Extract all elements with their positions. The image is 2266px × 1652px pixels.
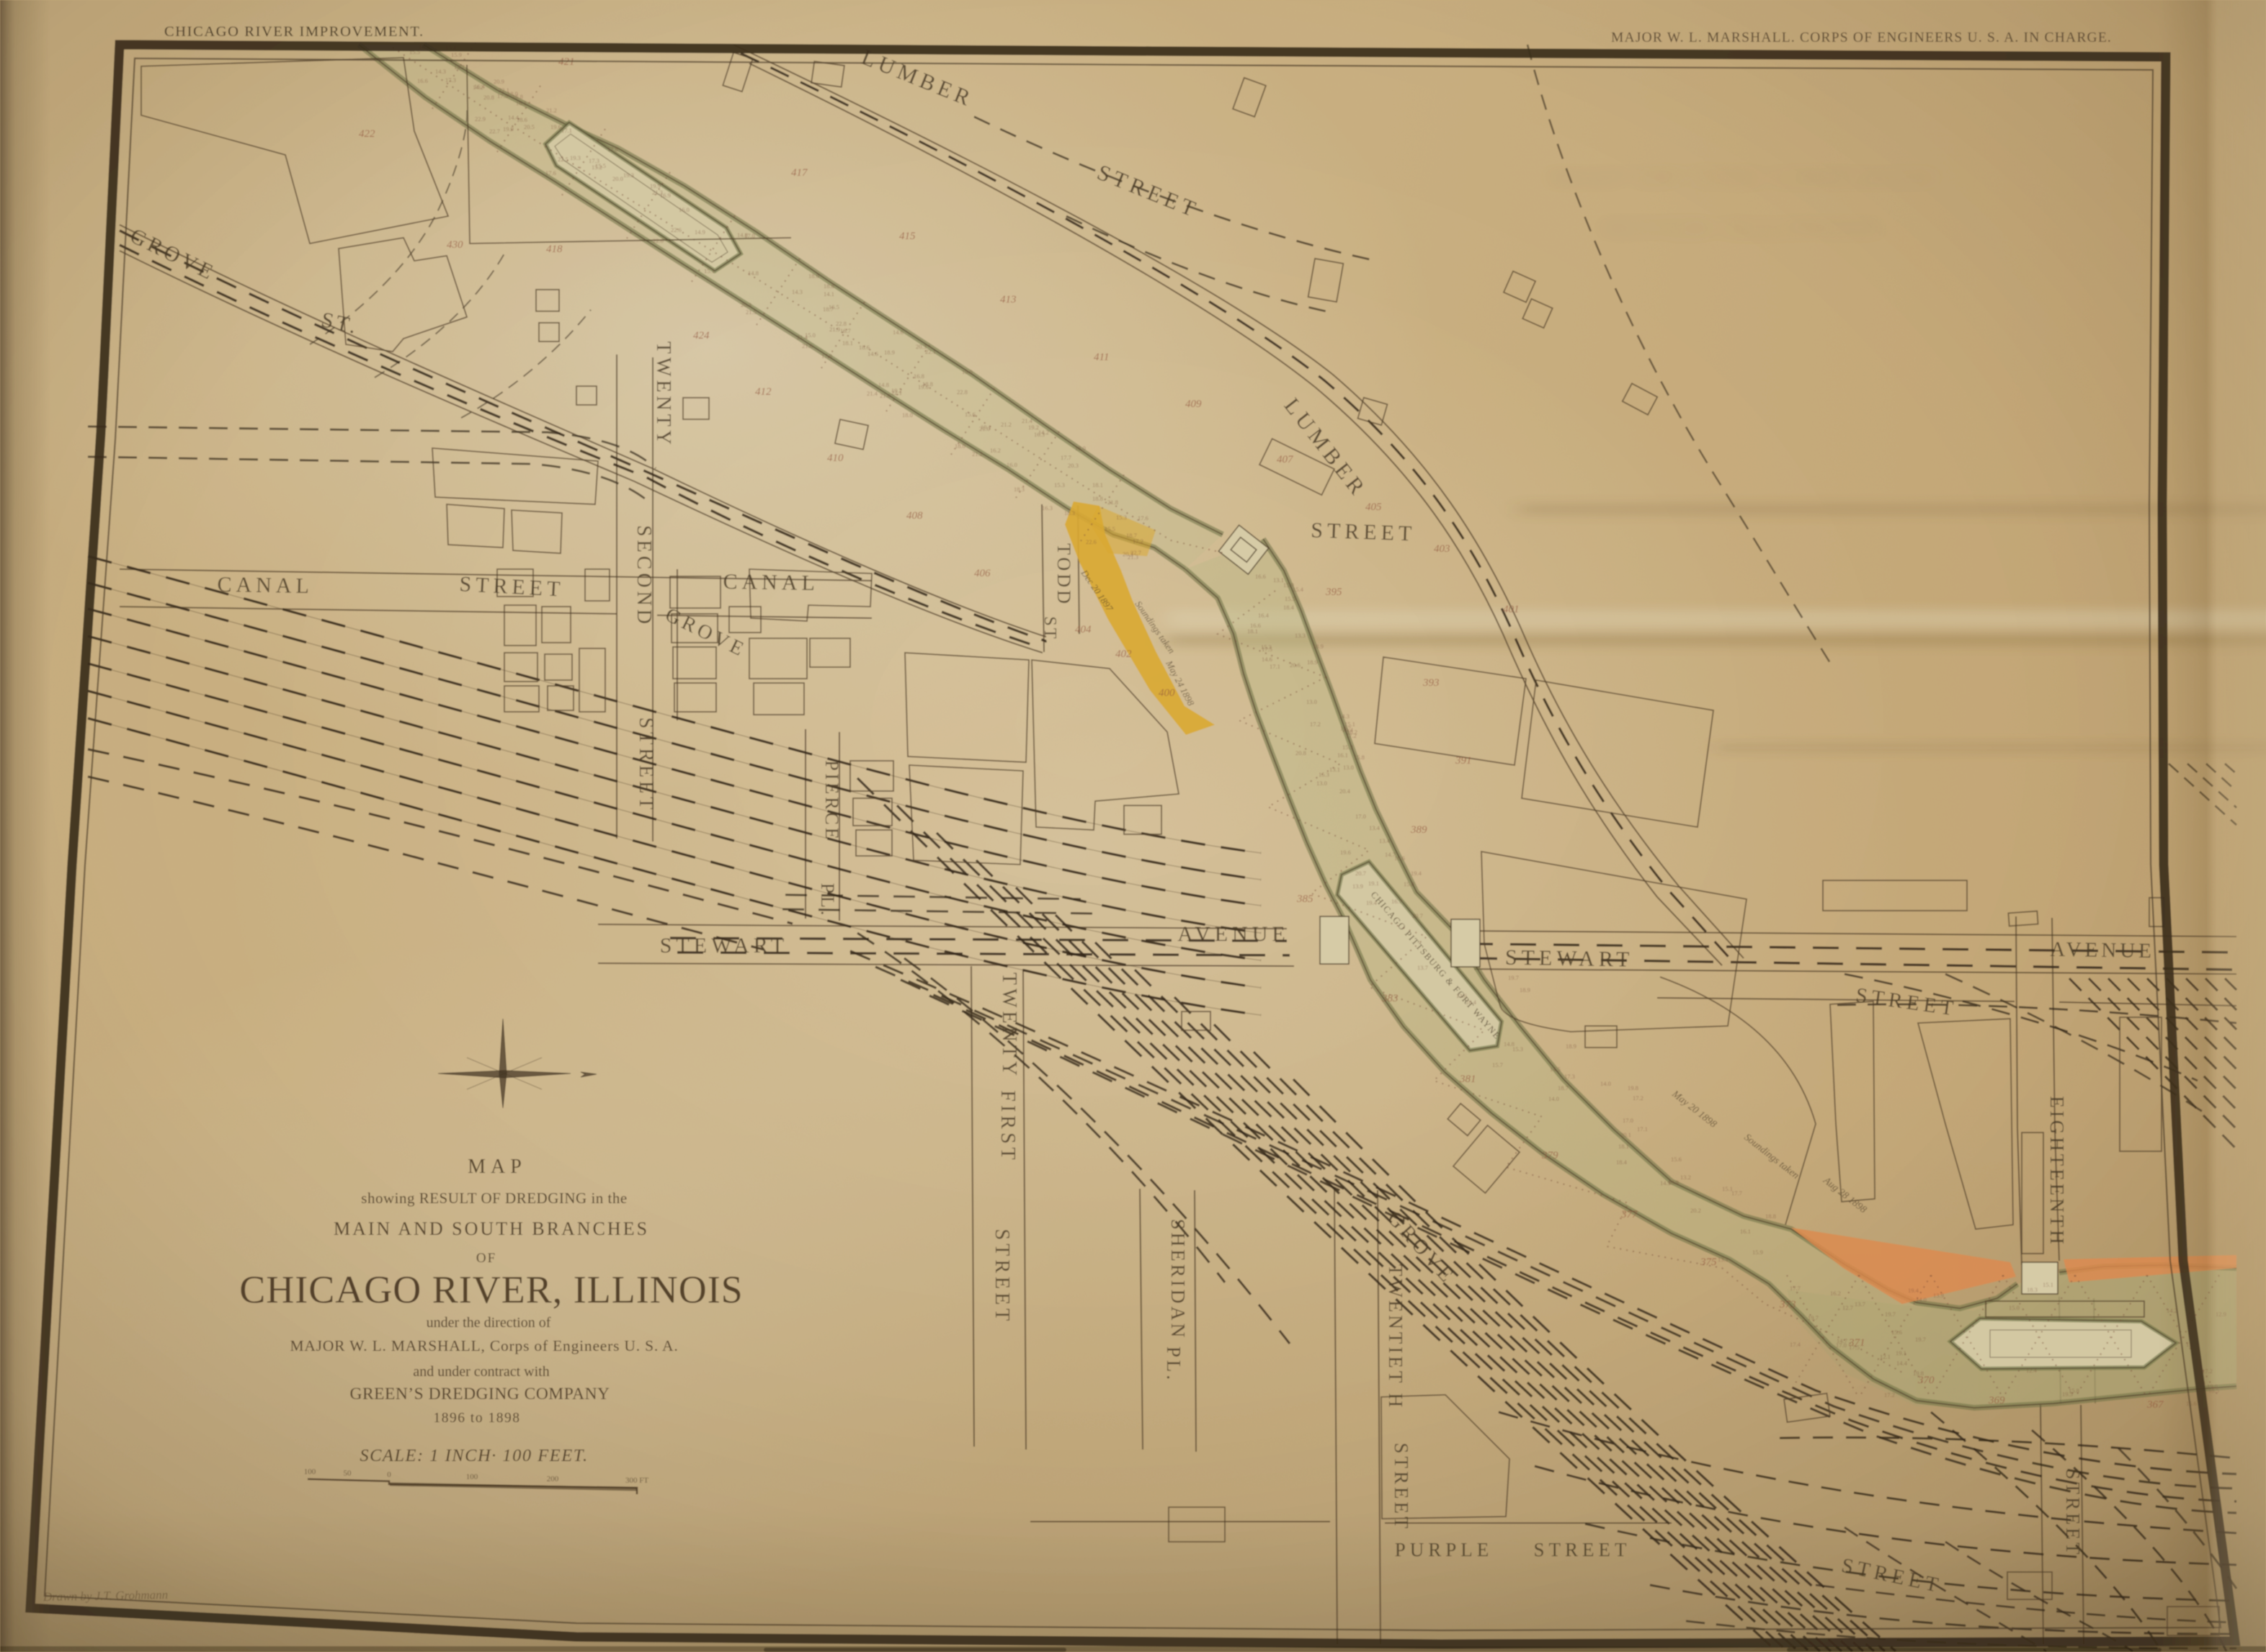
svg-text:405: 405 (1365, 501, 1382, 513)
svg-text:13.7: 13.7 (1855, 1300, 1865, 1308)
svg-text:16.5: 16.5 (829, 303, 839, 311)
svg-text:RIVER ILLINOIS: RIVER ILLINOIS (1606, 212, 1882, 244)
svg-text:15.9: 15.9 (451, 51, 462, 58)
svg-text:13.3: 13.3 (1295, 632, 1306, 639)
svg-text:15.2: 15.2 (592, 164, 602, 171)
svg-text:16.2: 16.2 (990, 447, 1001, 454)
svg-text:15.8: 15.8 (1404, 880, 1414, 888)
svg-text:402: 402 (1115, 648, 1132, 660)
svg-text:16.3: 16.3 (1034, 431, 1045, 438)
svg-text:19.8: 19.8 (1628, 1084, 1638, 1091)
svg-text:20.3: 20.3 (1068, 462, 1079, 469)
svg-text:PURPLE: PURPLE (1395, 1539, 1494, 1561)
svg-text:19.2: 19.2 (1028, 424, 1039, 431)
svg-text:GREEN’S DREDGING COMPANY: GREEN’S DREDGING COMPANY (349, 1385, 610, 1403)
svg-text:13.2: 13.2 (1680, 1174, 1691, 1181)
svg-text:TWENTY: TWENTY (652, 341, 674, 448)
svg-text:22.7: 22.7 (1130, 549, 1141, 556)
svg-text:CANAL: CANAL (723, 570, 819, 595)
svg-text:16.0: 16.0 (679, 206, 690, 213)
svg-text:18.0: 18.0 (955, 442, 965, 450)
svg-text:20.0: 20.0 (612, 175, 623, 182)
svg-text:15.3: 15.3 (1342, 744, 1353, 751)
svg-text:18.4: 18.4 (1283, 604, 1295, 611)
svg-text:18.0: 18.0 (1075, 445, 1086, 452)
svg-text:411: 411 (1094, 352, 1109, 363)
svg-text:15.3: 15.3 (1261, 643, 1272, 651)
svg-text:21.2: 21.2 (1001, 421, 1012, 428)
svg-text:22.6: 22.6 (653, 237, 664, 244)
svg-text:15.8: 15.8 (1354, 754, 1365, 761)
svg-text:MAP OF THE CHICAGO: MAP OF THE CHICAGO (1551, 161, 1936, 194)
svg-text:21.4: 21.4 (1022, 417, 1033, 424)
svg-text:14.6: 14.6 (867, 350, 878, 357)
svg-text:16.3: 16.3 (1042, 504, 1053, 512)
svg-text:17.1: 17.1 (561, 127, 572, 134)
svg-text:14.9: 14.9 (695, 228, 705, 236)
svg-text:STREET: STREET (1534, 1539, 1631, 1561)
svg-text:17.2: 17.2 (1884, 1391, 1895, 1398)
svg-text:22.1: 22.1 (925, 348, 936, 355)
svg-text:19.7: 19.7 (1508, 974, 1519, 981)
svg-text:16.6: 16.6 (417, 77, 428, 84)
svg-text:18.7: 18.7 (1126, 532, 1137, 539)
svg-text:300 FT: 300 FT (625, 1476, 648, 1485)
svg-text:12.4: 12.4 (2026, 1367, 2038, 1374)
svg-text:13.1: 13.1 (1273, 576, 1284, 584)
svg-text:19.1: 19.1 (1368, 880, 1379, 887)
svg-text:13.0: 13.0 (1343, 764, 1354, 771)
svg-text:TWENTIET H: TWENTIET H (1385, 1264, 1406, 1410)
svg-text:18.9: 18.9 (1307, 658, 1318, 666)
svg-text:1896 to 1898: 1896 to 1898 (434, 1411, 521, 1426)
svg-text:18.9: 18.9 (1566, 1042, 1576, 1050)
svg-text:18.8: 18.8 (1765, 1213, 1776, 1220)
svg-text:STREET: STREET (1391, 1443, 1412, 1532)
svg-text:401: 401 (1503, 604, 1520, 615)
svg-text:12.1: 12.1 (1880, 1353, 1891, 1360)
svg-text:21.2: 21.2 (972, 450, 983, 457)
svg-text:21.6: 21.6 (802, 342, 813, 349)
svg-text:21.2: 21.2 (546, 107, 557, 114)
svg-text:14.8: 14.8 (878, 381, 889, 388)
svg-text:430: 430 (447, 239, 463, 251)
svg-text:16.1: 16.1 (1740, 1228, 1751, 1235)
svg-text:15.7: 15.7 (1492, 1061, 1503, 1068)
svg-text:19.4: 19.4 (1366, 899, 1378, 906)
svg-text:16.6: 16.6 (1255, 573, 1266, 580)
svg-text:0: 0 (387, 1470, 391, 1479)
svg-text:CHICAGO RIVER, ILLINOIS: CHICAGO RIVER, ILLINOIS (239, 1268, 743, 1311)
svg-text:400: 400 (1159, 687, 1175, 699)
svg-text:413: 413 (1000, 294, 1017, 305)
svg-text:17.6: 17.6 (545, 169, 556, 177)
svg-text:17.0: 17.0 (1836, 1341, 1847, 1349)
svg-text:15.5: 15.5 (1285, 595, 1295, 602)
svg-text:18.8: 18.8 (824, 282, 834, 290)
svg-text:and under contract with: and under contract with (413, 1364, 549, 1380)
svg-text:15.1: 15.1 (1344, 720, 1355, 728)
svg-text:15.1: 15.1 (1722, 1185, 1733, 1192)
svg-text:12.7: 12.7 (1842, 1304, 1853, 1311)
svg-text:409: 409 (1185, 398, 1202, 410)
svg-text:17.5: 17.5 (1849, 1344, 1860, 1351)
svg-text:375: 375 (1700, 1256, 1717, 1268)
svg-text:14.3: 14.3 (792, 288, 803, 295)
svg-text:PL.: PL. (1163, 1347, 1185, 1383)
svg-text:17.7: 17.7 (1061, 454, 1071, 461)
svg-text:422: 422 (359, 128, 375, 140)
svg-text:MAJOR W. L. MARSHALL, Corp: MAJOR W. L. MARSHALL, Corps of Engineers… (290, 1337, 678, 1354)
svg-text:17.3: 17.3 (1564, 1073, 1575, 1080)
svg-text:14.5: 14.5 (1550, 1066, 1561, 1073)
svg-text:15.0: 15.0 (2009, 1304, 2020, 1311)
svg-text:Drawn by J.T. Grohmann: Drawn by J.T. Grohmann (43, 1588, 169, 1604)
svg-text:16.4: 16.4 (1258, 612, 1270, 619)
svg-text:17.2: 17.2 (1310, 720, 1321, 728)
svg-text:14.4: 14.4 (1896, 1359, 1908, 1367)
svg-text:17.1: 17.1 (1270, 663, 1280, 670)
svg-text:21.8: 21.8 (1107, 499, 1118, 506)
svg-text:22.8: 22.8 (957, 388, 968, 396)
svg-text:21.0: 21.0 (880, 392, 891, 399)
svg-text:showing RESULT OF DREDGING in: showing RESULT OF DREDGING in the (361, 1189, 627, 1207)
svg-text:TODD: TODD (1053, 543, 1074, 607)
svg-text:PL.: PL. (817, 883, 838, 919)
svg-text:50: 50 (344, 1469, 352, 1478)
svg-text:14.6: 14.6 (893, 329, 904, 336)
svg-text:200: 200 (547, 1475, 559, 1483)
svg-text:17.4: 17.4 (1790, 1341, 1801, 1348)
svg-text:15.1: 15.1 (704, 267, 715, 274)
svg-text:393: 393 (1422, 677, 1440, 689)
svg-text:19.3: 19.3 (570, 154, 581, 161)
svg-text:410: 410 (827, 452, 844, 464)
svg-text:421: 421 (558, 56, 575, 68)
svg-text:MAP: MAP (468, 1156, 527, 1178)
svg-text:21.5: 21.5 (746, 308, 757, 316)
svg-text:403: 403 (1434, 543, 1450, 555)
svg-text:FIRST: FIRST (996, 1090, 1019, 1163)
svg-text:15.9: 15.9 (1283, 581, 1294, 589)
svg-text:22.7: 22.7 (489, 128, 500, 135)
svg-text:STREET: STREET (1311, 518, 1417, 545)
svg-text:17.7: 17.7 (1731, 1189, 1742, 1197)
svg-text:14.7: 14.7 (1385, 851, 1396, 858)
svg-text:18.3: 18.3 (1064, 509, 1075, 517)
svg-text:16.4: 16.4 (474, 83, 486, 90)
svg-text:16.1: 16.1 (1337, 751, 1348, 759)
svg-text:18.0: 18.0 (902, 411, 913, 419)
svg-text:18.1: 18.1 (842, 339, 853, 347)
svg-text:18.8: 18.8 (922, 380, 933, 388)
svg-text:15.9: 15.9 (1752, 1249, 1763, 1256)
svg-text:20.1: 20.1 (1620, 1131, 1631, 1138)
svg-text:369: 369 (1988, 1395, 2005, 1406)
svg-text:22.6: 22.6 (1086, 538, 1097, 545)
svg-text:18.0: 18.0 (507, 90, 518, 97)
svg-text:14.0: 14.0 (1600, 1080, 1611, 1087)
svg-text:14.3: 14.3 (1339, 713, 1350, 720)
svg-text:15.3: 15.3 (1319, 771, 1329, 778)
svg-text:14.8: 14.8 (748, 269, 759, 277)
svg-text:17.8: 17.8 (821, 352, 832, 360)
svg-text:16.2: 16.2 (1347, 728, 1357, 736)
svg-text:13.0: 13.0 (1316, 780, 1327, 787)
svg-text:20.2: 20.2 (1690, 1207, 1701, 1214)
svg-text:17.6: 17.6 (1138, 514, 1148, 522)
svg-text:16.6: 16.6 (1394, 854, 1405, 862)
svg-text:STEWART: STEWART (660, 934, 789, 957)
svg-text:SHERIDAN: SHERIDAN (1167, 1219, 1189, 1341)
svg-text:CHICAGO RIVER IMPROVEMENT.: CHICAGO RIVER IMPROVEMENT. (164, 24, 424, 40)
svg-text:14.0: 14.0 (1916, 1296, 1927, 1303)
svg-text:16.0: 16.0 (1007, 461, 1017, 468)
svg-text:16.7: 16.7 (840, 327, 851, 334)
svg-text:AVENUE: AVENUE (1177, 922, 1289, 946)
svg-text:20.8: 20.8 (1295, 749, 1306, 756)
svg-text:14.9: 14.9 (1660, 1179, 1671, 1187)
svg-text:15.3: 15.3 (1054, 481, 1065, 488)
svg-text:18.8: 18.8 (1092, 495, 1103, 502)
svg-text:391: 391 (1455, 755, 1472, 767)
svg-text:18.4: 18.4 (1466, 999, 1477, 1006)
svg-text:19.7: 19.7 (1885, 1311, 1896, 1318)
svg-text:383: 383 (1381, 993, 1399, 1004)
svg-text:16.9: 16.9 (660, 192, 671, 199)
svg-text:417: 417 (791, 167, 808, 179)
svg-text:17.0: 17.0 (1623, 1117, 1633, 1124)
svg-text:13.9: 13.9 (1352, 883, 1363, 890)
svg-text:20.4: 20.4 (1339, 787, 1351, 795)
svg-text:SCALE: 1 INCH· 100 FEET.: SCALE: 1 INCH· 100 FEET. (360, 1446, 588, 1465)
svg-text:CANAL: CANAL (217, 573, 313, 598)
svg-text:15.1: 15.1 (2043, 1281, 2053, 1288)
svg-text:407: 407 (1277, 454, 1294, 465)
svg-text:20.9: 20.9 (494, 78, 504, 85)
svg-text:389: 389 (1410, 824, 1427, 836)
svg-text:17.7: 17.7 (1790, 1285, 1801, 1292)
svg-text:385: 385 (1296, 893, 1313, 905)
svg-text:381: 381 (1459, 1073, 1476, 1085)
svg-text:17.8: 17.8 (607, 146, 618, 153)
svg-text:14.0: 14.0 (1548, 1095, 1559, 1102)
svg-text:22.6: 22.6 (671, 226, 682, 233)
svg-text:19.4: 19.4 (1411, 870, 1422, 877)
svg-text:19.8: 19.8 (1913, 1370, 1924, 1377)
svg-text:19.7: 19.7 (1808, 1314, 1819, 1321)
svg-text:100: 100 (304, 1468, 316, 1476)
svg-text:22.1: 22.1 (891, 389, 902, 396)
svg-text:13.4: 13.4 (1369, 824, 1380, 831)
svg-text:15.3: 15.3 (1512, 1045, 1523, 1053)
svg-text:13.4: 13.4 (1379, 837, 1391, 844)
svg-text:377: 377 (1620, 1209, 1638, 1220)
svg-text:20.3: 20.3 (741, 301, 751, 308)
svg-text:14.3: 14.3 (435, 68, 446, 75)
svg-text:19.4: 19.4 (1908, 1287, 1919, 1294)
svg-text:22.9: 22.9 (475, 115, 486, 122)
svg-text:22.5: 22.5 (558, 156, 568, 163)
svg-text:21.9: 21.9 (829, 326, 840, 333)
svg-text:418: 418 (546, 244, 563, 255)
svg-text:13.1: 13.1 (1718, 1256, 1729, 1263)
svg-text:under the direction of: under the direction of (427, 1315, 551, 1331)
svg-text:415: 415 (899, 231, 916, 242)
svg-text:15.6: 15.6 (1891, 1329, 1902, 1336)
svg-text:STREET: STREET (991, 1229, 1013, 1325)
svg-text:16.2: 16.2 (1830, 1290, 1841, 1297)
svg-text:100: 100 (466, 1473, 478, 1481)
svg-text:SECOND: SECOND (633, 525, 655, 628)
svg-text:15.4: 15.4 (1293, 586, 1304, 593)
svg-text:STREET: STREET (635, 718, 657, 813)
svg-text:404: 404 (1075, 624, 1092, 635)
svg-text:PIERCE: PIERCE (821, 760, 842, 842)
svg-text:14.6: 14.6 (1262, 656, 1272, 663)
svg-text:15.8: 15.8 (2069, 1387, 2079, 1394)
svg-text:MAIN AND SOUTH BRANCHES: MAIN AND SOUTH BRANCHES (334, 1218, 649, 1239)
svg-text:18.1: 18.1 (1618, 1143, 1629, 1150)
svg-text:TWENTY: TWENTY (998, 973, 1020, 1079)
svg-text:16.6: 16.6 (1250, 622, 1261, 629)
svg-text:19.6: 19.6 (1340, 849, 1351, 856)
svg-text:408: 408 (906, 510, 923, 522)
svg-text:ST.: ST. (1040, 616, 1059, 646)
svg-text:15.6: 15.6 (965, 411, 976, 418)
svg-text:19.9: 19.9 (503, 125, 514, 133)
svg-text:13.0: 13.0 (1306, 698, 1317, 705)
svg-text:19.3: 19.3 (623, 171, 634, 179)
svg-text:17.1: 17.1 (1637, 1125, 1648, 1133)
svg-text:19.1: 19.1 (981, 424, 991, 431)
svg-text:20.7: 20.7 (1412, 912, 1423, 919)
svg-text:19.0: 19.0 (962, 368, 973, 375)
svg-text:17.2: 17.2 (1633, 1094, 1643, 1102)
svg-text:STEWART: STEWART (1505, 945, 1634, 971)
svg-text:EIGHTEENTH: EIGHTEENTH (2046, 1096, 2068, 1246)
svg-text:18.6: 18.6 (517, 116, 527, 123)
svg-text:379: 379 (1541, 1150, 1558, 1161)
svg-text:412: 412 (755, 386, 772, 398)
svg-text:14.7: 14.7 (454, 63, 465, 71)
svg-text:20.6: 20.6 (1290, 661, 1301, 669)
svg-text:18.9: 18.9 (884, 349, 895, 356)
svg-text:17.3: 17.3 (445, 76, 456, 84)
svg-text:395: 395 (1325, 586, 1342, 598)
svg-text:20.8: 20.8 (483, 94, 494, 101)
svg-text:18.0: 18.0 (808, 272, 819, 280)
svg-text:14.1: 14.1 (824, 290, 834, 298)
svg-text:15.3: 15.3 (1116, 514, 1127, 521)
svg-text:18.9: 18.9 (1520, 986, 1530, 994)
svg-text:424: 424 (693, 330, 710, 341)
svg-text:15.5: 15.5 (1105, 525, 1115, 532)
svg-text:13.9: 13.9 (1933, 1292, 1944, 1299)
svg-text:17.0: 17.0 (744, 232, 755, 239)
svg-text:15.0: 15.0 (805, 331, 816, 339)
svg-text:20.7: 20.7 (1355, 870, 1366, 877)
svg-text:16.1: 16.1 (516, 99, 527, 107)
svg-text:18.9: 18.9 (1313, 643, 1324, 650)
svg-text:13.6: 13.6 (1456, 992, 1467, 999)
svg-text:15.6: 15.6 (1671, 1156, 1682, 1163)
svg-text:MAJOR W. L. MARSHALL. CORPS O: MAJOR W. L. MARSHALL. CORPS OF ENGINEERS… (1611, 30, 2112, 45)
svg-text:18.7: 18.7 (1558, 1084, 1569, 1091)
svg-text:16.8: 16.8 (914, 372, 924, 380)
svg-text:19.1: 19.1 (1896, 1349, 1906, 1357)
svg-text:373: 373 (1779, 1299, 1796, 1311)
svg-text:406: 406 (974, 568, 991, 579)
svg-text:20.5: 20.5 (524, 123, 535, 130)
svg-text:OF: OF (476, 1251, 496, 1266)
svg-text:19.6: 19.6 (550, 123, 561, 130)
svg-text:18.3: 18.3 (2027, 1286, 2038, 1293)
svg-text:16.7: 16.7 (1391, 898, 1402, 905)
svg-text:13.7: 13.7 (1417, 964, 1428, 971)
svg-text:21.4: 21.4 (867, 390, 878, 397)
svg-text:17.0: 17.0 (1355, 813, 1366, 820)
svg-text:13.1: 13.1 (1329, 766, 1340, 773)
svg-text:18.3: 18.3 (1014, 486, 1025, 493)
svg-text:STREET: STREET (2062, 1469, 2084, 1558)
svg-text:AVENUE: AVENUE (2050, 938, 2155, 963)
svg-text:18.1: 18.1 (1092, 481, 1103, 488)
svg-text:18.4: 18.4 (1616, 1158, 1628, 1166)
svg-text:19.7: 19.7 (1915, 1336, 1926, 1343)
